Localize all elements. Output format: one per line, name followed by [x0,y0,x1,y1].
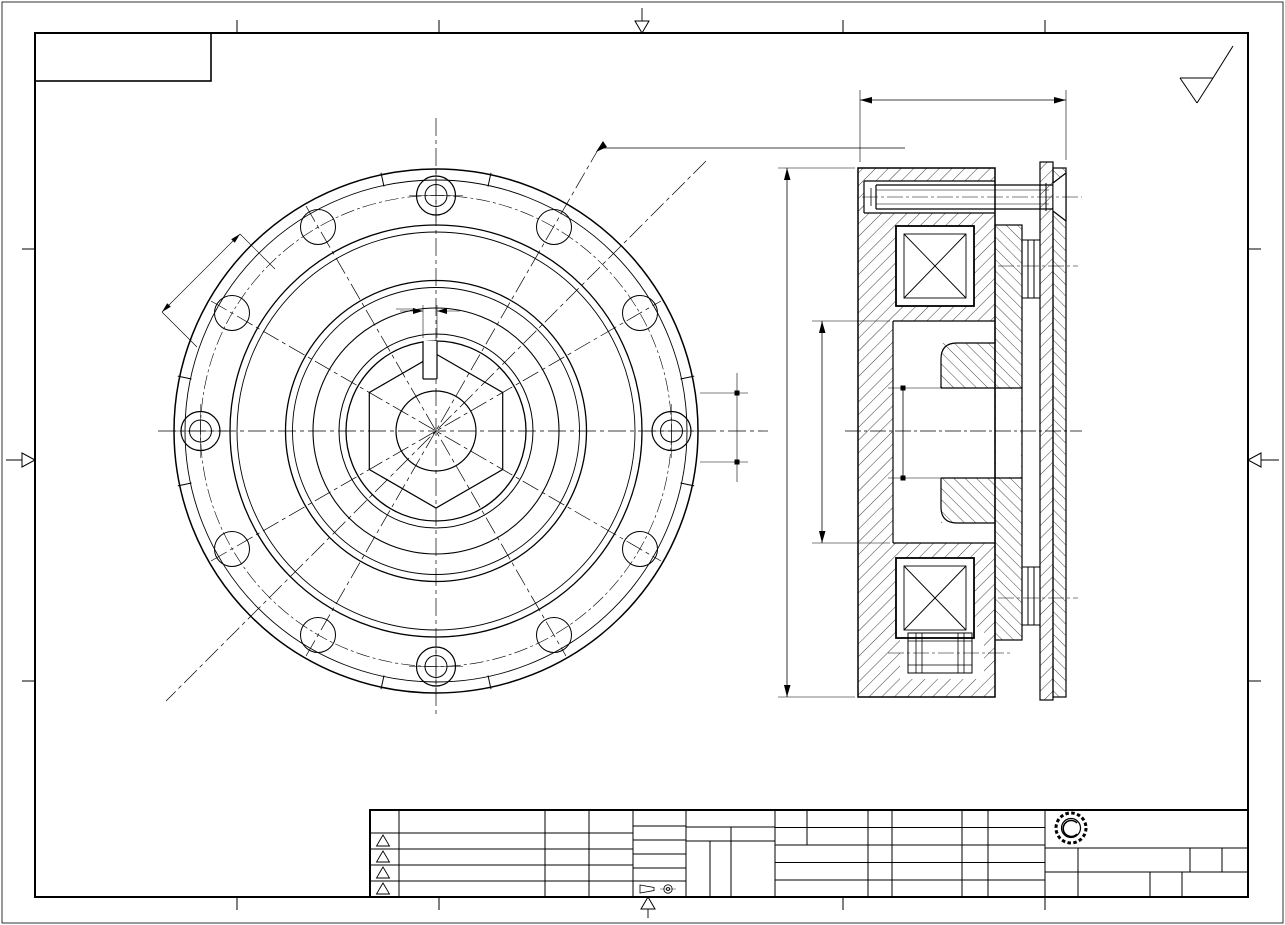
drawing-canvas [0,0,1285,925]
proc-row2 [633,827,686,839]
scale-label [962,880,988,897]
cad-sheet: { "banner": { "text": "由 Autodesk 教育版产品制… [0,0,1285,925]
section-view [778,90,1082,700]
heat-label [962,862,988,880]
note-chamfer [775,862,868,880]
rev-header-content [399,810,545,833]
drawing-no-label [1150,872,1182,897]
drawn-label [868,810,892,827]
date-label-2 [962,827,988,845]
note-fillet [775,845,868,862]
rev-header-date [589,810,633,833]
company-name [1092,812,1246,846]
product-name-label [1045,848,1078,872]
date-label-3 [962,845,988,862]
proc-row1 [633,811,686,825]
audit-label [868,845,892,862]
surface-label [868,880,892,897]
drawn-date [988,810,1045,827]
company-logo [1056,813,1086,843]
machine-type [1078,872,1150,897]
sheet-frame [2,2,1283,923]
drawn-by [892,810,962,827]
rev-header-banci [370,810,399,833]
proc-cell-big [731,842,775,852]
proc-cell4 [710,842,730,852]
date-label-1 [962,810,988,827]
proc-cell2 [686,828,775,840]
product-name [1078,848,1190,872]
machine-type-label [1045,872,1078,897]
front-view [158,118,905,716]
rev-header-person [545,810,589,833]
note-deburr [775,880,868,897]
check-label [868,827,892,845]
proc-row4 [633,855,686,867]
proc-cell1 [686,811,775,826]
drawing-no [1190,872,1246,897]
surface-finish-symbol [1180,46,1233,103]
proc-cell3 [687,842,709,852]
revision-value [1222,848,1248,872]
material-label [868,862,892,880]
revision-label [1190,848,1222,872]
proc-row3 [633,841,686,853]
material-value [892,862,962,880]
